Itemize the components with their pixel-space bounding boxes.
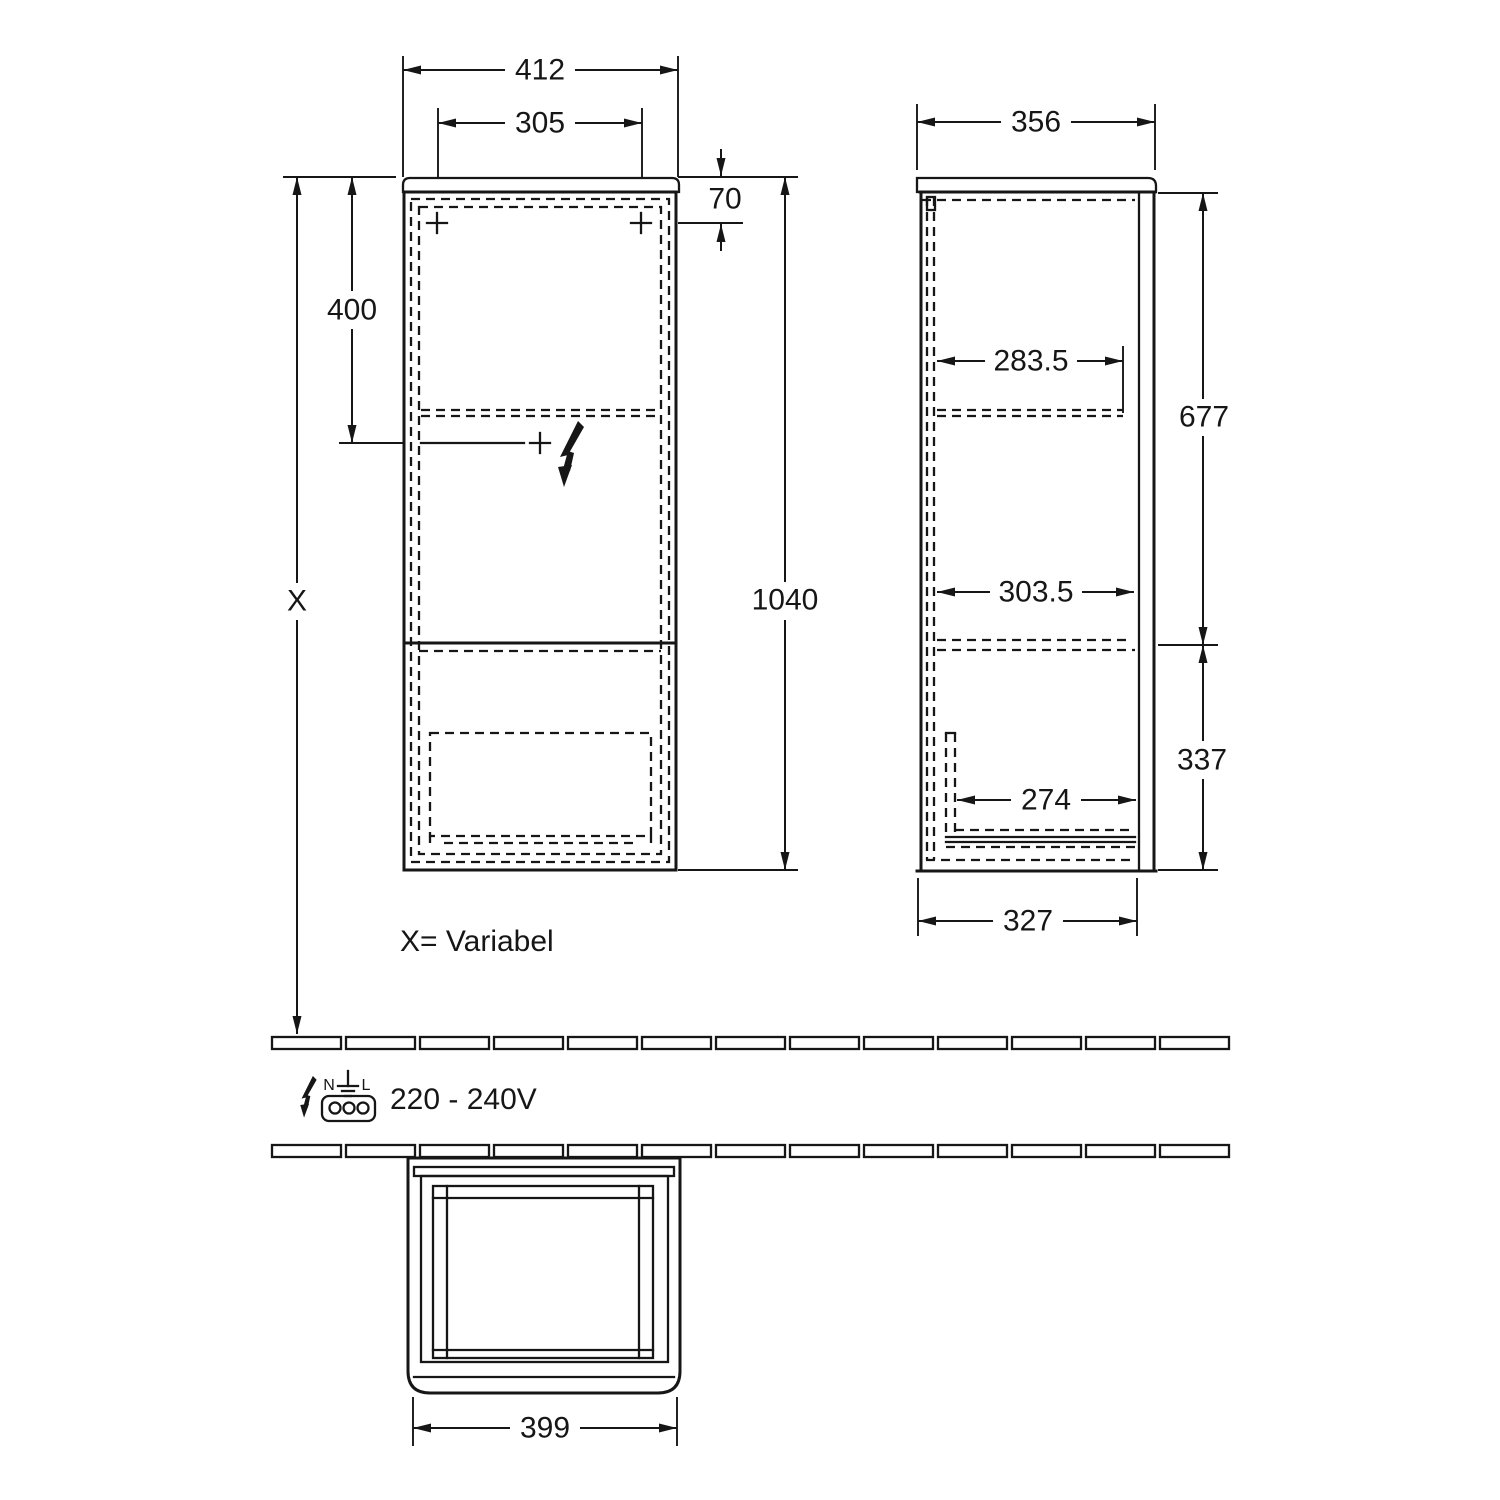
hatch-brick	[716, 1145, 785, 1157]
hatch-brick	[494, 1037, 563, 1049]
front-hinge-cross-right	[631, 213, 651, 233]
front-internal-box-dashed	[430, 733, 651, 836]
dim-wall-height-x: X	[287, 585, 307, 618]
dim-top-panel: 70	[708, 183, 741, 216]
hatch-brick	[1012, 1037, 1081, 1049]
front-view	[403, 178, 679, 870]
hatch-brick	[642, 1145, 711, 1157]
hatch-brick	[1086, 1037, 1155, 1049]
hatch-brick	[346, 1037, 415, 1049]
dim-total-height: 1040	[752, 584, 819, 617]
dim-top-view-width: 399	[520, 1412, 570, 1445]
side-dimensions: 356 283.5 677 303.5 274 337 327	[917, 104, 1234, 938]
hatch-brick	[938, 1145, 1007, 1157]
dim-side-depth: 356	[1011, 106, 1061, 139]
hatch-brick	[272, 1145, 341, 1157]
hatch-brick	[346, 1145, 415, 1157]
technical-drawing-page: 412 305 X 400 70 1040	[0, 0, 1500, 1500]
dim-front-width: 412	[515, 54, 565, 87]
dim-lower-shelf-depth: 274	[1021, 784, 1071, 817]
side-countertop	[917, 178, 1156, 192]
plug-connector-icon	[322, 1096, 375, 1121]
hatch-brick	[1086, 1145, 1155, 1157]
dim-upper-section: 400	[327, 294, 377, 327]
hatch-brick	[1160, 1037, 1229, 1049]
earth-ground-icon	[338, 1071, 358, 1096]
front-center-cross-mark	[530, 433, 550, 453]
top-view: 399	[408, 1158, 680, 1446]
power-connection-symbol: N L 220 - 240V	[300, 1071, 537, 1121]
dim-upper-height: 677	[1179, 401, 1229, 434]
hatch-brick	[494, 1145, 563, 1157]
variable-note: X= Variabel	[400, 925, 554, 958]
cabinet-technical-drawing: 412 305 X 400 70 1040	[0, 0, 1500, 1500]
dim-front-inner-width: 305	[515, 107, 565, 140]
dim-lower-height: 337	[1177, 744, 1227, 777]
hatch-brick	[1160, 1145, 1229, 1157]
hatch-brick	[938, 1037, 1007, 1049]
hatch-brick	[568, 1037, 637, 1049]
dim-middle-shelf-depth: 303.5	[998, 576, 1073, 609]
dim-base-depth: 327	[1003, 905, 1053, 938]
dim-upper-shelf-depth: 283.5	[993, 345, 1068, 378]
hatch-brick	[272, 1037, 341, 1049]
hatch-brick	[864, 1037, 933, 1049]
small-lightning-bolt-icon	[300, 1076, 316, 1118]
front-body-outline	[404, 192, 676, 870]
front-door-outer-dashed	[411, 199, 669, 862]
terminal-label-n: N	[323, 1077, 335, 1094]
hatch-brick	[642, 1037, 711, 1049]
hatch-brick	[790, 1037, 859, 1049]
front-door-inner-dashed	[419, 207, 661, 854]
terminal-label-l: L	[362, 1077, 371, 1094]
hatch-brick	[864, 1145, 933, 1157]
top-view-mounting-rail	[414, 1167, 674, 1176]
hatch-brick	[716, 1037, 785, 1049]
front-countertop	[403, 178, 679, 192]
hatch-brick	[790, 1145, 859, 1157]
front-hinge-cross-left	[427, 213, 447, 233]
lightning-bolt-icon	[558, 421, 584, 487]
top-view-inner-frame	[433, 1186, 653, 1358]
hatch-brick	[568, 1145, 637, 1157]
wall-hatch-band-lower	[272, 1145, 1229, 1157]
hatch-brick	[420, 1145, 489, 1157]
hatch-brick	[420, 1037, 489, 1049]
hatch-brick	[1012, 1145, 1081, 1157]
voltage-label: 220 - 240V	[390, 1083, 537, 1116]
side-view	[917, 178, 1156, 871]
wall-hatch-band-upper	[272, 1037, 1229, 1049]
top-view-carcass	[421, 1176, 668, 1362]
